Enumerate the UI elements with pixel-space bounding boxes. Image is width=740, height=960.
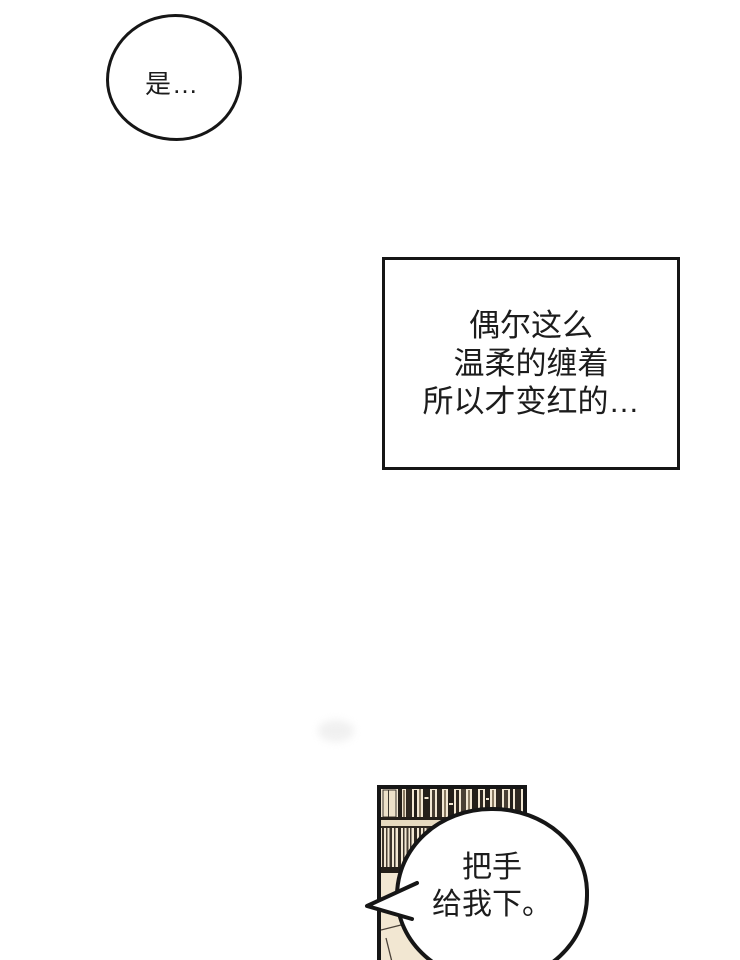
caption-box: 偶尔这么 温柔的缠着 所以才变红的… xyxy=(382,257,680,470)
speech-line: 把手 xyxy=(462,849,522,886)
speech-bubble-tail-icon xyxy=(358,872,428,928)
speech-line: 给我下。 xyxy=(432,886,552,923)
print-smudge xyxy=(318,720,354,742)
caption-line: 温柔的缠着 xyxy=(454,345,609,383)
thought-bubble: 是… xyxy=(106,14,242,141)
caption-line: 偶尔这么 xyxy=(469,307,593,345)
caption-line: 所以才变红的… xyxy=(423,383,640,421)
comic-page: 是… 偶尔这么 温柔的缠着 所以才变红的… xyxy=(0,0,740,960)
thought-bubble-text: 是… xyxy=(145,71,199,97)
